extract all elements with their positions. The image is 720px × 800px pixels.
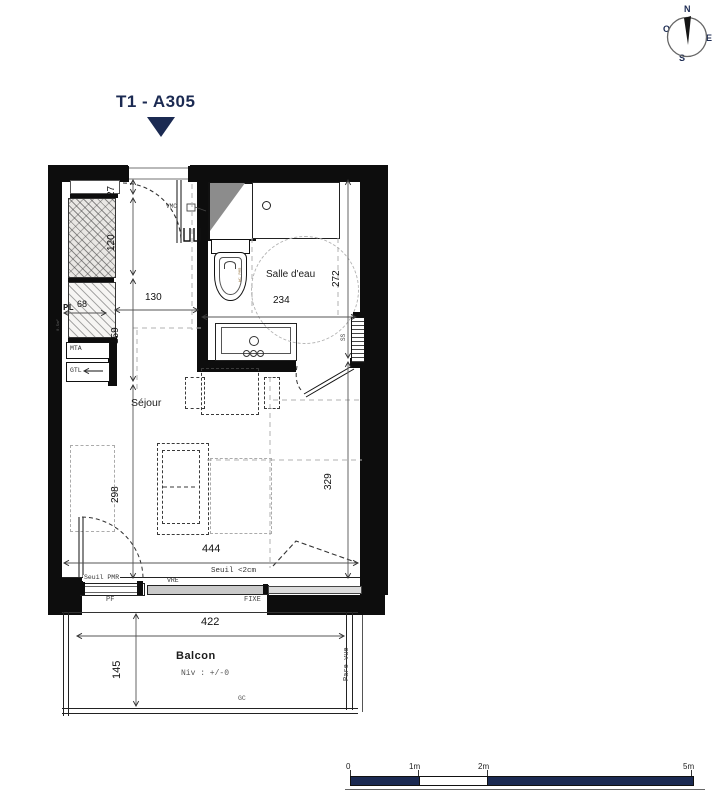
bathroom-label: Salle d'eau (266, 270, 315, 280)
plan-linework (0, 0, 720, 800)
shower-seat-wedge (210, 183, 245, 231)
gc-label: GC (238, 696, 246, 703)
living-label: Séjour (131, 398, 161, 409)
vre-label: VRE (166, 578, 180, 585)
pare-vue-label: Pare vue (344, 647, 351, 681)
dim-130: 130 (145, 293, 162, 303)
dim-444: 444 (202, 544, 220, 555)
pl-area-label: 0.5m² (57, 319, 61, 331)
scale-seg-1-2m (419, 777, 488, 785)
dim-68: 68 (77, 300, 87, 309)
scale-bar (350, 776, 694, 786)
pl-label: PL (63, 304, 74, 313)
curtain-symbol (273, 541, 358, 566)
dim-298: 298 (111, 486, 121, 503)
bathroom-door-swing (296, 366, 302, 391)
dim-422: 422 (201, 617, 219, 628)
vmc-label: VMC (166, 204, 177, 210)
scale-seg-2-5m (488, 777, 693, 785)
balcony-label: Balcon (176, 651, 216, 662)
wc-label: WC PMR (239, 268, 243, 282)
floor-plan-page: T1 - A305 N O E S MTA GTL (0, 0, 720, 800)
dim-234: 234 (273, 296, 290, 306)
entry-door (129, 168, 188, 243)
seuil-pmr-label: Seuil PMR (83, 575, 120, 582)
fixe-label: FIXE (244, 597, 261, 604)
dim-159: 159 (111, 327, 121, 344)
zone-dashes (133, 184, 362, 568)
bathroom-door (304, 366, 354, 397)
compass-rose (668, 16, 707, 57)
pf-label: PF (106, 597, 114, 604)
balcony-level-label: Niv : +/-0 (181, 670, 229, 678)
dim-272: 272 (332, 270, 342, 287)
scale-5m-label: 5m (683, 763, 694, 771)
scale-baseline (345, 789, 705, 790)
seuil-2cm-label: Seuil <2cm (210, 568, 257, 576)
dim-145: 145 (112, 661, 123, 679)
entry-door-swing (123, 183, 181, 241)
vmc-leader (195, 207, 206, 211)
dim-329: 329 (324, 473, 334, 490)
compass-needle (684, 16, 691, 45)
pf-door (79, 517, 83, 577)
towel-rail-label: SS (341, 334, 347, 341)
dim-27: 27 (107, 186, 117, 197)
vmc-symbol (187, 204, 195, 211)
pf-door-swing (82, 517, 143, 578)
scale-seg-0-1m (351, 777, 419, 785)
dim-120: 120 (107, 234, 117, 251)
